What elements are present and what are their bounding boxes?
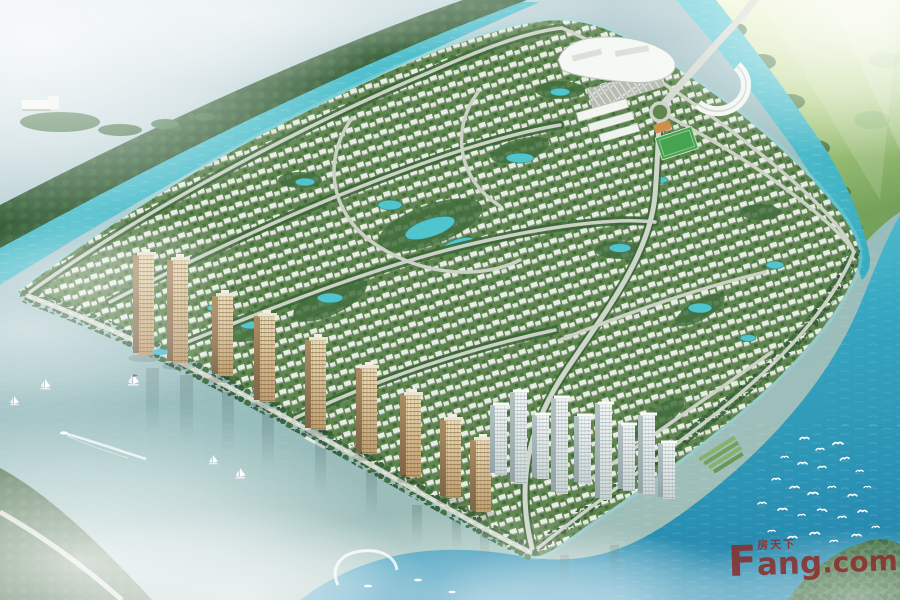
fang-logo-tld: .com bbox=[821, 544, 898, 580]
fang-watermark: F房天下ang.com bbox=[727, 535, 898, 583]
fang-logo-f: F bbox=[727, 536, 757, 586]
aerial-rendering-svg bbox=[0, 0, 900, 600]
fog-overlay bbox=[0, 0, 900, 600]
fang-logo-cn: 房天下 bbox=[757, 539, 796, 551]
aerial-rendering: F房天下ang.com bbox=[0, 0, 900, 600]
